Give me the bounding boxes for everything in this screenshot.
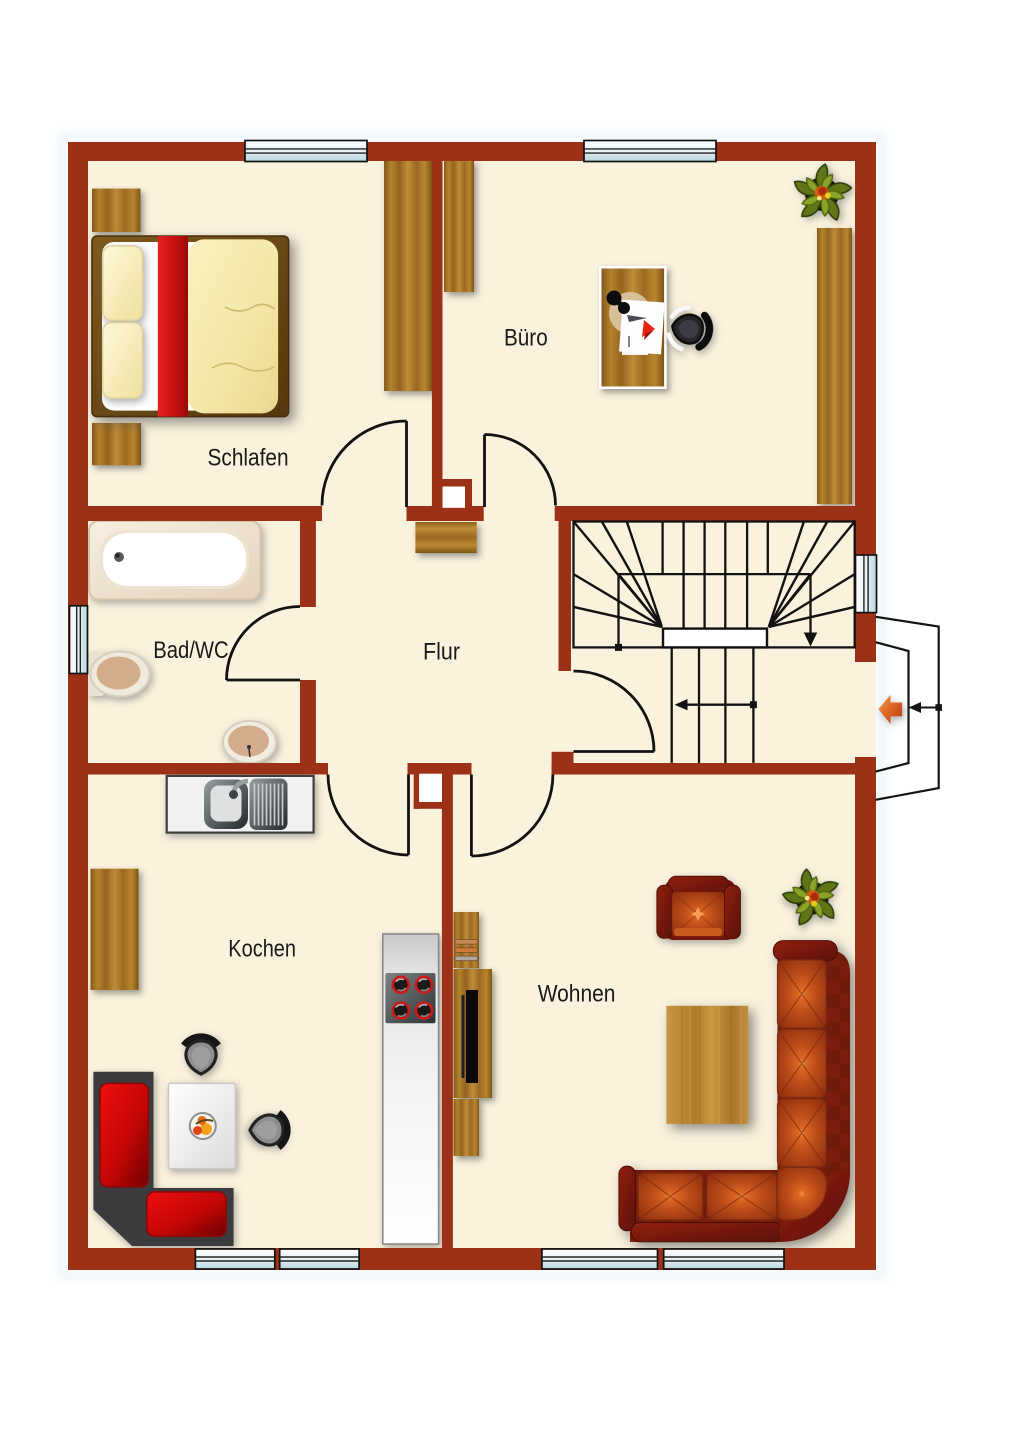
svg-text:Büro: Büro [504,325,548,352]
svg-text:Bad/WC: Bad/WC [153,637,228,664]
svg-text:Kochen: Kochen [228,936,296,963]
svg-text:Wohnen: Wohnen [538,981,616,1008]
svg-text:Flur: Flur [423,639,460,666]
svg-text:Schlafen: Schlafen [208,444,289,471]
